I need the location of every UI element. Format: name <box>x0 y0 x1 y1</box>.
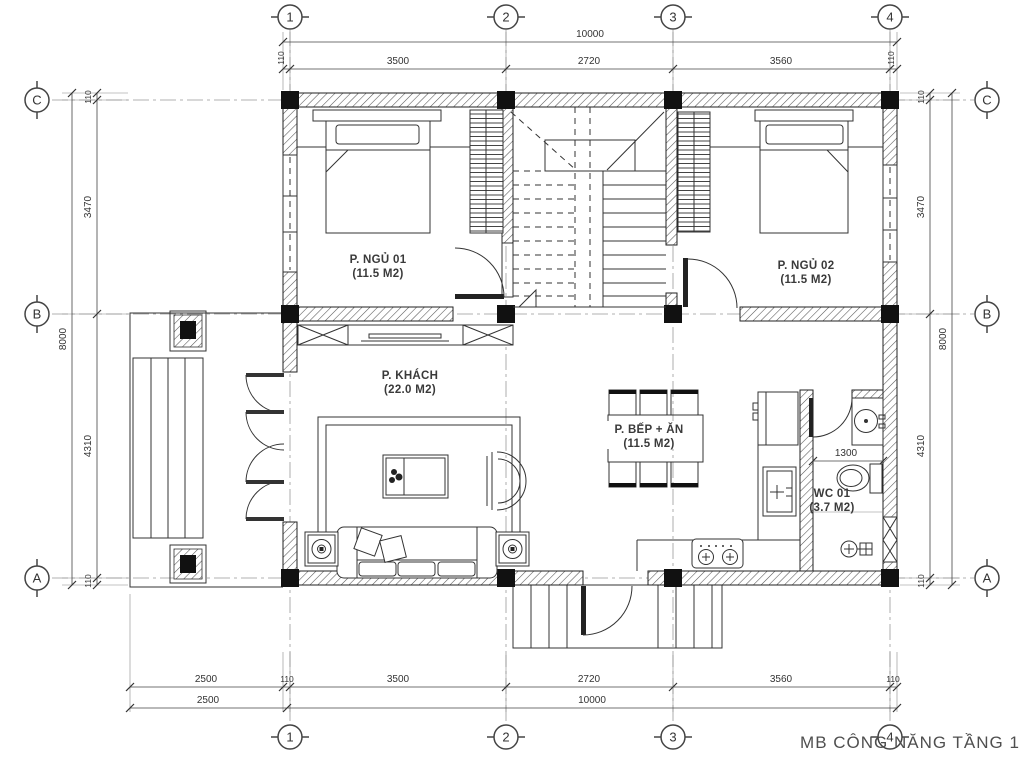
dim-seg: 110 <box>916 574 926 588</box>
window-bedroom2 <box>883 165 897 262</box>
door-bedroom2 <box>683 258 737 308</box>
grid-label: 3 <box>669 730 676 745</box>
bed-bedroom2 <box>755 110 853 233</box>
dim-seg: 4310 <box>916 434 927 457</box>
grid-bubble-C-left: C <box>25 81 49 119</box>
door-wc <box>809 398 852 437</box>
grid-bubble-4-top: 4 <box>871 5 909 29</box>
folding-doors-living <box>246 373 284 521</box>
bedroom1-furniture <box>297 110 503 233</box>
dim-seg: 110 <box>83 90 93 104</box>
dim-seg: 3500 <box>387 674 410 685</box>
room-label-bedroom1: P. NGỦ 01 <box>350 253 407 266</box>
grid-bubble-2-bottom: 2 <box>487 725 525 749</box>
room-area-living: (22.0 M2) <box>384 384 436 396</box>
grid-label: C <box>982 93 991 108</box>
bedroom2-furniture <box>678 110 883 233</box>
dimensions-top: 10000 110 3500 2720 3560 110 <box>276 29 901 90</box>
drawing-title: MB CÔNG NĂNG TẦNG 1 <box>800 733 1020 752</box>
coffee-table <box>383 455 448 498</box>
dim-overall-right: 8000 <box>938 327 949 350</box>
window-wc <box>883 517 897 562</box>
dim-seg: 3560 <box>770 56 793 67</box>
porch <box>130 311 283 587</box>
tv-console <box>298 325 513 345</box>
dim-seg: 3470 <box>916 195 927 218</box>
room-area-kitchen: (11.5 M2) <box>623 438 674 450</box>
grid-bubble-1-top: 1 <box>271 5 309 29</box>
kitchen-sink-icon <box>763 467 796 516</box>
room-area-bedroom1: (11.5 M2) <box>352 268 403 280</box>
shower-icon <box>841 541 872 557</box>
dim-seg: 110 <box>276 51 286 65</box>
fridge-icon <box>753 392 798 445</box>
door-bedroom1 <box>455 248 504 299</box>
grid-bubble-A-right: A <box>975 559 999 597</box>
side-table-left <box>305 532 338 566</box>
room-label-living: P. KHÁCH <box>382 369 439 382</box>
stove-icon <box>692 539 743 568</box>
grid-label: B <box>33 307 42 322</box>
grid-bubble-2-top: 2 <box>487 5 525 29</box>
room-label-wc: WC 01 <box>814 488 851 500</box>
kitchen-dining <box>608 390 800 571</box>
dim-seg: 3500 <box>387 56 410 67</box>
door-main-entry <box>581 586 632 635</box>
dim-seg: 3470 <box>83 195 94 218</box>
grid-label: 4 <box>886 10 893 25</box>
grid-bubble-B-left: B <box>25 295 49 333</box>
grid-label: 3 <box>669 10 676 25</box>
dim-seg: 110 <box>83 574 93 588</box>
grid-bubble-B-right: B <box>975 295 999 333</box>
dim-seg: 2500 <box>197 695 220 706</box>
dim-overall-top: 10000 <box>576 29 604 40</box>
living-room-furniture <box>298 325 529 578</box>
kitchen-counter <box>637 392 800 571</box>
dim-seg: 4310 <box>83 434 94 457</box>
floor-plan-canvas: 1 2 3 4 1 2 3 4 C B A C B A 10000 110 35… <box>0 0 1024 760</box>
window-bedroom1 <box>283 155 297 272</box>
grid-label: C <box>32 93 41 108</box>
dim-seg: 3560 <box>770 674 793 685</box>
grid-label: A <box>33 571 42 586</box>
grid-bubble-1-bottom: 1 <box>271 725 309 749</box>
grid-label: 1 <box>286 10 293 25</box>
room-area-bedroom2: (11.5 M2) <box>780 274 831 286</box>
entry-steps <box>513 585 722 648</box>
grid-bubble-3-bottom: 3 <box>654 725 692 749</box>
grid-label: B <box>983 307 992 322</box>
staircase <box>511 107 666 307</box>
grid-label: 2 <box>502 10 509 25</box>
grid-bubble-3-top: 3 <box>654 5 692 29</box>
sofa <box>337 527 497 578</box>
dim-seg: 110 <box>886 51 896 65</box>
dim-seg: 110 <box>886 674 900 684</box>
dim-wc-width: 1300 <box>835 448 858 459</box>
dim-seg: 2720 <box>578 674 601 685</box>
room-label-bedroom2: P. NGỦ 02 <box>778 259 835 272</box>
bed-bedroom1 <box>313 110 441 233</box>
dim-overall-left: 8000 <box>58 327 69 350</box>
grid-bubble-C-right: C <box>975 81 999 119</box>
porch-column-bottom <box>170 545 206 583</box>
grid-label: 1 <box>286 730 293 745</box>
dim-seg: 2720 <box>578 56 601 67</box>
stair-treads-lower <box>603 185 666 296</box>
dimensions-left: 110 3470 4310 110 8000 <box>58 89 128 589</box>
side-table-right <box>496 532 529 566</box>
grid-label: A <box>983 571 992 586</box>
floor-plan-page: 1 2 3 4 1 2 3 4 C B A C B A 10000 110 35… <box>0 0 1024 760</box>
dimensions-right: 110 3470 4310 110 8000 <box>900 89 960 589</box>
stair-treads-upper-dashed <box>513 185 575 296</box>
lavabo-icon <box>852 398 885 445</box>
dim-seg: 110 <box>280 674 294 684</box>
porch-column-top <box>170 311 206 351</box>
grid-bubble-A-left: A <box>25 559 49 597</box>
grid-label: 2 <box>502 730 509 745</box>
room-area-wc: (3.7 M2) <box>809 502 854 514</box>
dim-seg: 110 <box>916 90 926 104</box>
dim-seg: 10000 <box>578 695 606 706</box>
dim-seg: 2500 <box>195 674 218 685</box>
room-label-kitchen: P. BẾP + ĂN <box>614 423 683 436</box>
wc-room: 1300 <box>809 398 887 557</box>
pillow <box>380 536 407 563</box>
